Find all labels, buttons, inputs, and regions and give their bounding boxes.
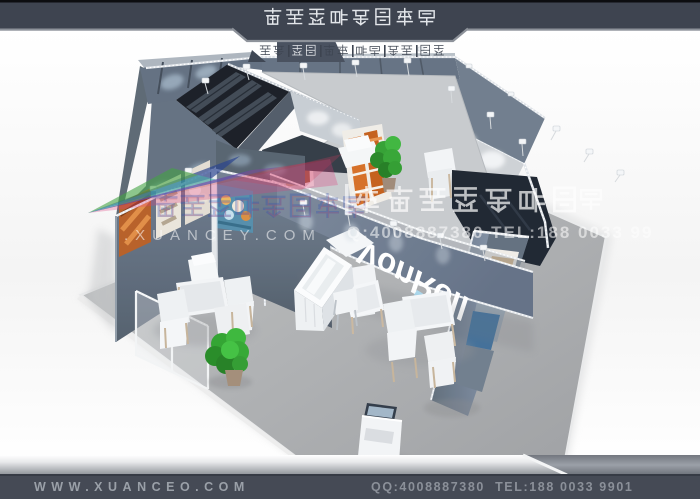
svg-text:WWW.XUANCEO.COM: WWW.XUANCEO.COM xyxy=(34,480,250,494)
svg-text:QQ:4008887380 TEL:188 0033 99: QQ:4008887380 TEL:188 0033 9901 xyxy=(371,480,633,494)
